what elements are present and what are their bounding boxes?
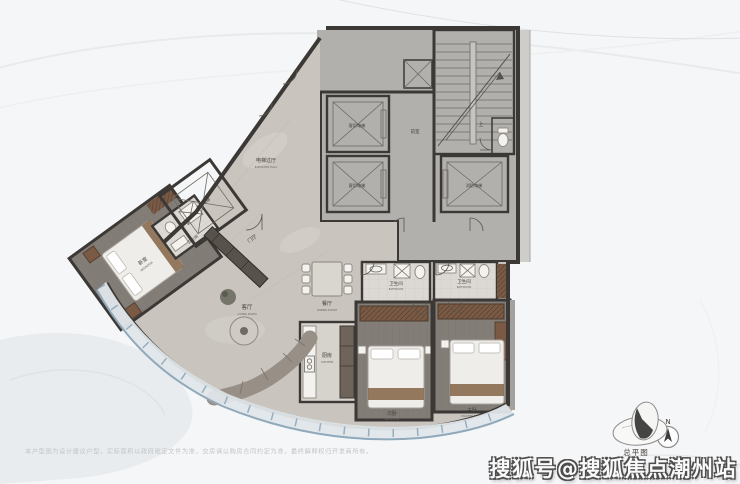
bedroom-second-label: 次卧 [387,410,397,417]
bathroom-sublabel: BATHROOM [457,285,471,289]
dining-sublabel: DINING ROOM [317,308,337,312]
chair [302,264,310,272]
floorplan-page: 上 客用电梯 客用电梯 消防电梯 [0,0,740,484]
nightstand [441,340,449,348]
elevator-label: 客用电梯 [349,122,366,129]
bathroom-sublabel: BATHROOM [389,287,403,291]
dining-label: 餐厅 [322,300,332,307]
elevator-label: 客用电梯 [349,182,366,189]
floorplan-canvas: 上 客用电梯 客用电梯 消防电梯 [0,0,740,484]
bed [450,340,504,404]
plant-icon [220,289,236,305]
nightstand [358,346,366,354]
elevator-label: 消防电梯 [466,182,483,189]
chair [302,286,310,294]
bedroom-second-sublabel: BEDROOM [385,417,400,421]
bedroom-master-label: 主卧 [467,407,477,414]
disclaimer-text: 本户型图为设计建议户型，实际面积以政府批定文件为准，交房请以购房合同约定为准，最… [25,446,373,455]
kitchen-sublabel: KITCHEN [321,360,333,364]
bathroom-label: 卫生间 [389,280,403,287]
coffee-table [240,327,248,335]
chair [344,286,352,294]
living-label: 客厅 [241,303,253,311]
bed [368,346,424,408]
bedroom-master: 主卧 MASTER ROOM [434,300,510,418]
bedroom-second: 次卧 BEDROOM [356,302,433,421]
bathroom-label: 卫生间 [457,278,471,285]
toilet-icon [498,134,508,147]
elevator-hall-label: 电梯过厅 [256,157,276,164]
elevator-hall-sublabel: ELEVATOR HALL [255,165,278,169]
kitchen-label: 厨房 [322,352,332,359]
chair [302,275,310,283]
chair [344,264,352,272]
stairs-up-label: 上 [478,121,483,128]
bathroom-1: 卫生间 BATHROOM [361,262,430,302]
living-sublabel: LIVING ROOM [237,312,257,316]
watermark: 搜狐号@搜狐焦点潮州站 [490,453,738,483]
chair [344,275,352,283]
dining-table [312,262,342,296]
bathroom-2: 卫生间 BATHROOM [434,262,497,300]
front-room-label: 前室 [411,128,420,135]
dining-set [302,262,352,296]
